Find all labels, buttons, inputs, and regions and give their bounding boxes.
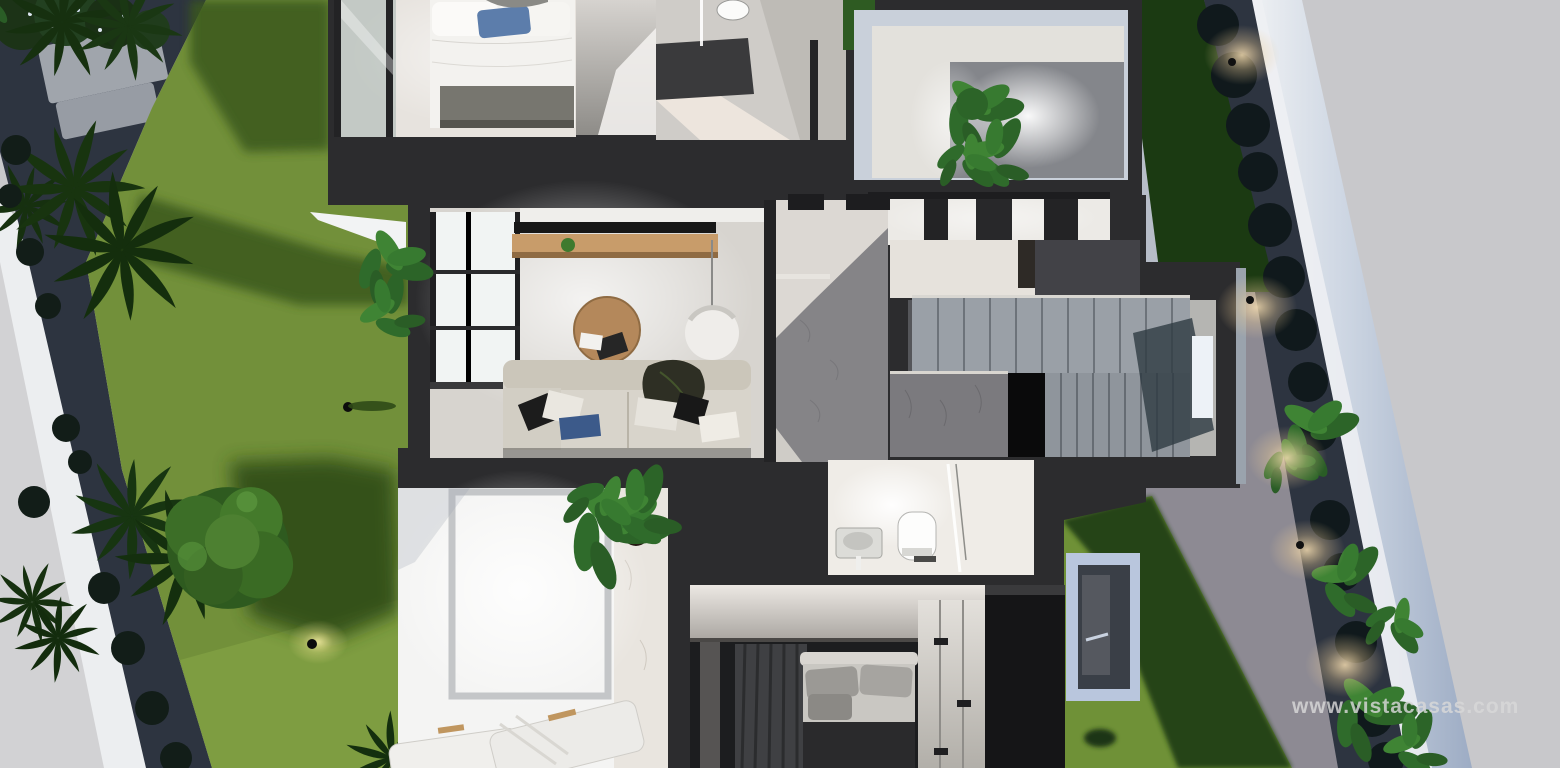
pillow-gray <box>859 664 913 698</box>
console-plant <box>561 238 575 252</box>
bollard-light <box>1228 58 1236 66</box>
stair-void <box>1008 373 1045 457</box>
terrace <box>388 447 709 768</box>
path-light-glow <box>1217 275 1297 339</box>
sofa <box>503 360 751 458</box>
skylight-hall <box>868 192 1110 245</box>
pillow-navy <box>559 414 601 440</box>
wardrobe-handle <box>934 748 948 755</box>
bollard-light <box>1246 296 1254 304</box>
pillow-blue <box>477 5 532 38</box>
bathroom-top <box>656 0 875 140</box>
path-light-glow <box>1269 520 1345 580</box>
render-canvas: www.vistacasas.com <box>0 0 1560 768</box>
bedroom-bottom <box>690 585 1065 768</box>
path-light-glow <box>1204 25 1280 85</box>
watermark-vistacasas: www.vistacasas.com <box>1291 695 1519 718</box>
door-header <box>846 194 890 210</box>
vanity-unit <box>656 38 754 100</box>
curtains <box>735 644 807 768</box>
path-light-glow <box>1247 426 1327 490</box>
blanket <box>440 86 574 124</box>
pillow-white <box>698 411 739 442</box>
coffee-table <box>574 297 640 363</box>
wall-stub <box>810 40 818 140</box>
wardrobe <box>918 600 985 768</box>
door-header <box>788 194 824 210</box>
bed-bottom <box>800 652 918 768</box>
throw-dark <box>803 722 915 768</box>
stair-window <box>1192 336 1213 418</box>
lightwell <box>1066 553 1140 701</box>
living-room <box>415 180 776 462</box>
bollard-light <box>1296 541 1304 549</box>
basin <box>717 0 749 20</box>
skylight-beam <box>1044 192 1078 245</box>
path-light-glow <box>1305 633 1385 697</box>
dark-wing <box>985 585 1065 768</box>
shower-glass <box>700 0 703 46</box>
bed-double <box>430 0 575 128</box>
hallway <box>776 194 890 462</box>
bedroom-main <box>334 0 656 137</box>
floor-drain <box>914 556 936 562</box>
bathroom-bottom <box>828 460 1034 575</box>
wardrobe-handle <box>957 700 971 707</box>
skylight-beam <box>924 192 948 245</box>
garden-spotlight <box>307 639 317 649</box>
bush-shadow <box>1084 729 1116 747</box>
tv-screen <box>514 222 716 233</box>
pillow-white <box>634 397 679 431</box>
magazine <box>579 333 603 351</box>
skylight-beam <box>976 192 1012 245</box>
stair-marble-wall <box>890 373 1008 457</box>
villa-top-view-render: www.vistacasas.com <box>0 0 1560 768</box>
wardrobe-handle <box>934 638 948 645</box>
